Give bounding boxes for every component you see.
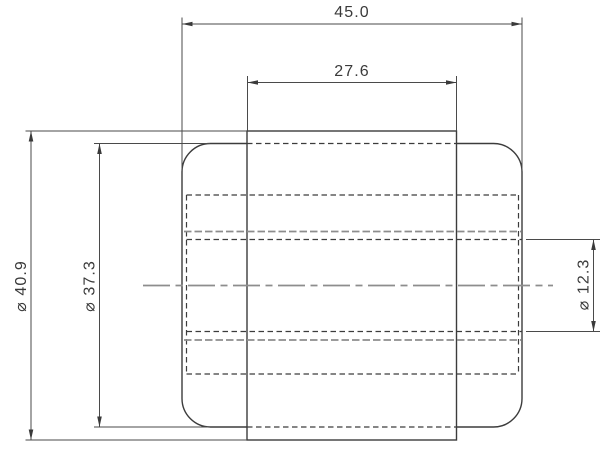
dimension-label-outer-diameter: ⌀ 40.9 xyxy=(13,260,30,312)
dimension-label-bore-diameter: ⌀ 12.3 xyxy=(576,259,593,311)
dimension-label-face-diameter: ⌀ 37.3 xyxy=(82,260,99,312)
technical-drawing-canvas: 45.0 27.6 ⌀ 40.9 ⌀ 37.3 ⌀ 12.3 xyxy=(0,0,615,465)
dimension-label-hub-width: 27.6 xyxy=(334,63,370,80)
dimension-label-overall-width: 45.0 xyxy=(334,4,370,21)
engineering-drawing: 45.0 27.6 ⌀ 40.9 ⌀ 37.3 ⌀ 12.3 xyxy=(0,0,615,465)
drawing-background xyxy=(0,0,615,465)
